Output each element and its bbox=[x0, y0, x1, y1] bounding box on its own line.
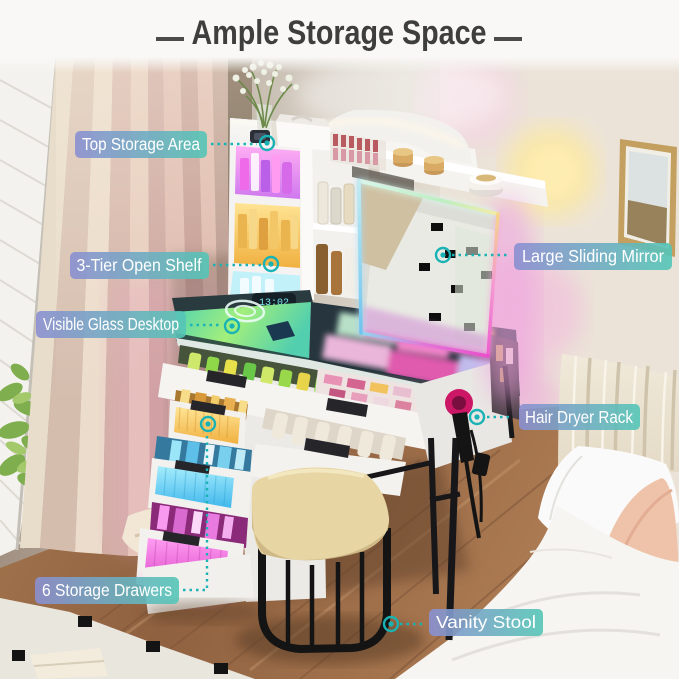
svg-text:Ample Storage Space: Ample Storage Space bbox=[192, 14, 487, 52]
